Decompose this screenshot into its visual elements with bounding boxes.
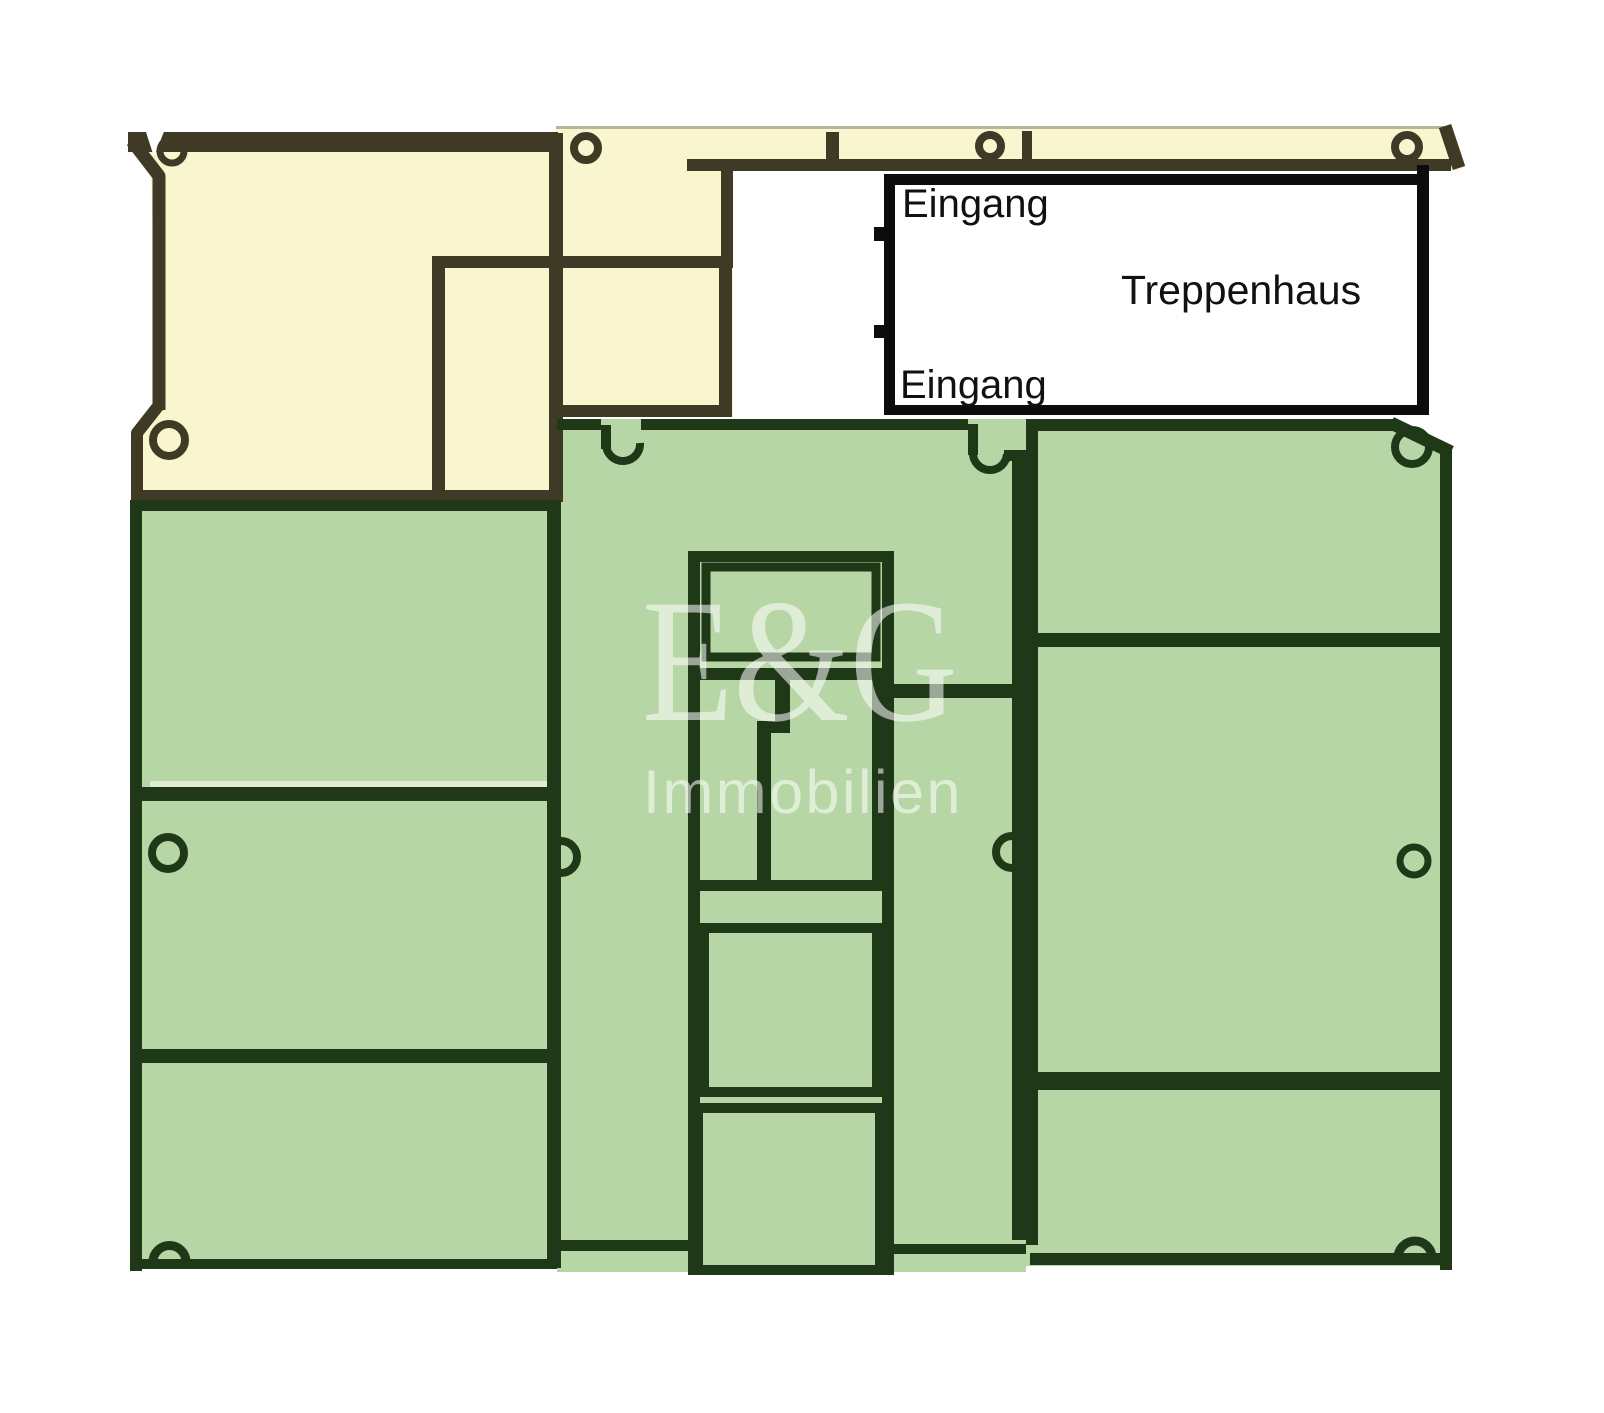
svg-text:Eingang: Eingang	[900, 363, 1047, 407]
svg-text:Eingang: Eingang	[902, 182, 1049, 226]
svg-text:E&G: E&G	[642, 564, 958, 759]
svg-text:Treppenhaus: Treppenhaus	[1121, 267, 1361, 313]
svg-text:Immobilien: Immobilien	[643, 758, 963, 826]
